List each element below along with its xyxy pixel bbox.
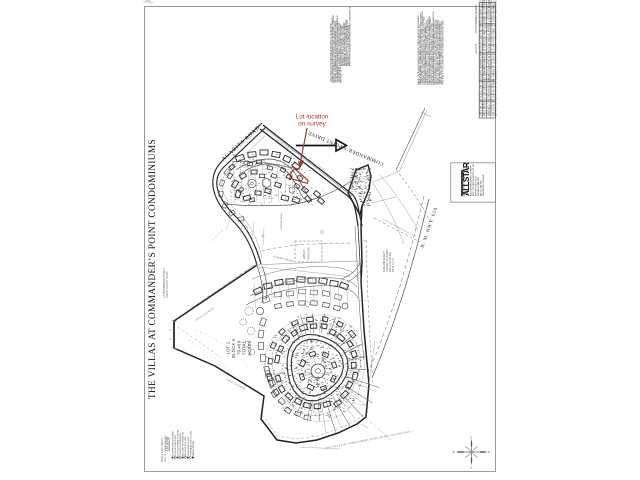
svg-text:79.469: 79.469 (236, 340, 241, 355)
svg-text:LOT 21 B: LOT 21 B (475, 43, 478, 54)
svg-text:VOL 11233 PG 442: VOL 11233 PG 442 (390, 251, 392, 272)
svg-text:FIRM REG NO 10003500: FIRM REG NO 10003500 (483, 174, 485, 196)
svg-text:SAVE AND EXCEPT: SAVE AND EXCEPT (383, 250, 386, 272)
svg-text:TOTAL: TOTAL (242, 340, 247, 355)
svg-text:Lot location: Lot location (296, 114, 329, 121)
svg-text:OVERHEAD UTILITY LINE: OVERHEAD UTILITY LINE (189, 430, 192, 456)
svg-text:SCALE 1 IN = 100 FT: SCALE 1 IN = 100 FT (161, 437, 164, 462)
svg-text:CALLED 1.67 ACRES: CALLED 1.67 ACRES (386, 249, 389, 272)
svg-text:R P R T C TX: R P R T C TX (393, 258, 395, 272)
svg-text:LAND SURVEYING COMPANY: LAND SURVEYING COMPANY (463, 168, 466, 197)
svg-text:BLOCK A: BLOCK A (231, 338, 236, 358)
svg-text:WATER: WATER (303, 250, 306, 259)
svg-text:LOT 1: LOT 1 (226, 341, 231, 354)
svg-text:ROD FOUND VOLUME ROD PAGE DATE: ROD FOUND VOLUME ROD PAGE DATED CONDOMIN… (349, 6, 352, 66)
svg-text:THE VILLAS AT COMMANDER’S POIN: THE VILLAS AT COMMANDER’S POINT CONDOMIN… (148, 139, 158, 399)
svg-text:E: E (488, 450, 490, 454)
svg-text:W: W (453, 450, 456, 454)
svg-text:ROD MADE TITLE COMMON TITLE MA: ROD MADE TITLE COMMON TITLE MADE BASIS R… (441, 20, 444, 85)
svg-text:A CONDOMINIUM PROJECT: A CONDOMINIUM PROJECT (163, 267, 166, 298)
svg-text:WATER METER: WATER METER (192, 440, 195, 456)
svg-text:COMMON AREA: COMMON AREA (280, 213, 283, 230)
svg-text:TANK SITE: TANK SITE (308, 247, 311, 260)
svg-text:ED RW FIELD BOOK 112 GF NO 440: ED RW FIELD BOOK 112 GF NO 44044400 LOT … (494, 0, 497, 116)
svg-text:TRAVIS COUNTY TEXAS: TRAVIS COUNTY TEXAS (166, 271, 169, 298)
svg-text:PLAT SHOWING SURVEY: PLAT SHOWING SURVEY (475, 4, 478, 33)
svg-text:on survey: on survey (298, 121, 327, 128)
svg-text:DATE OF SURVEY 04 12 02: DATE OF SURVEY 04 12 02 (164, 435, 167, 462)
svg-text:S: S (470, 466, 472, 470)
svg-text:N: N (470, 436, 472, 440)
